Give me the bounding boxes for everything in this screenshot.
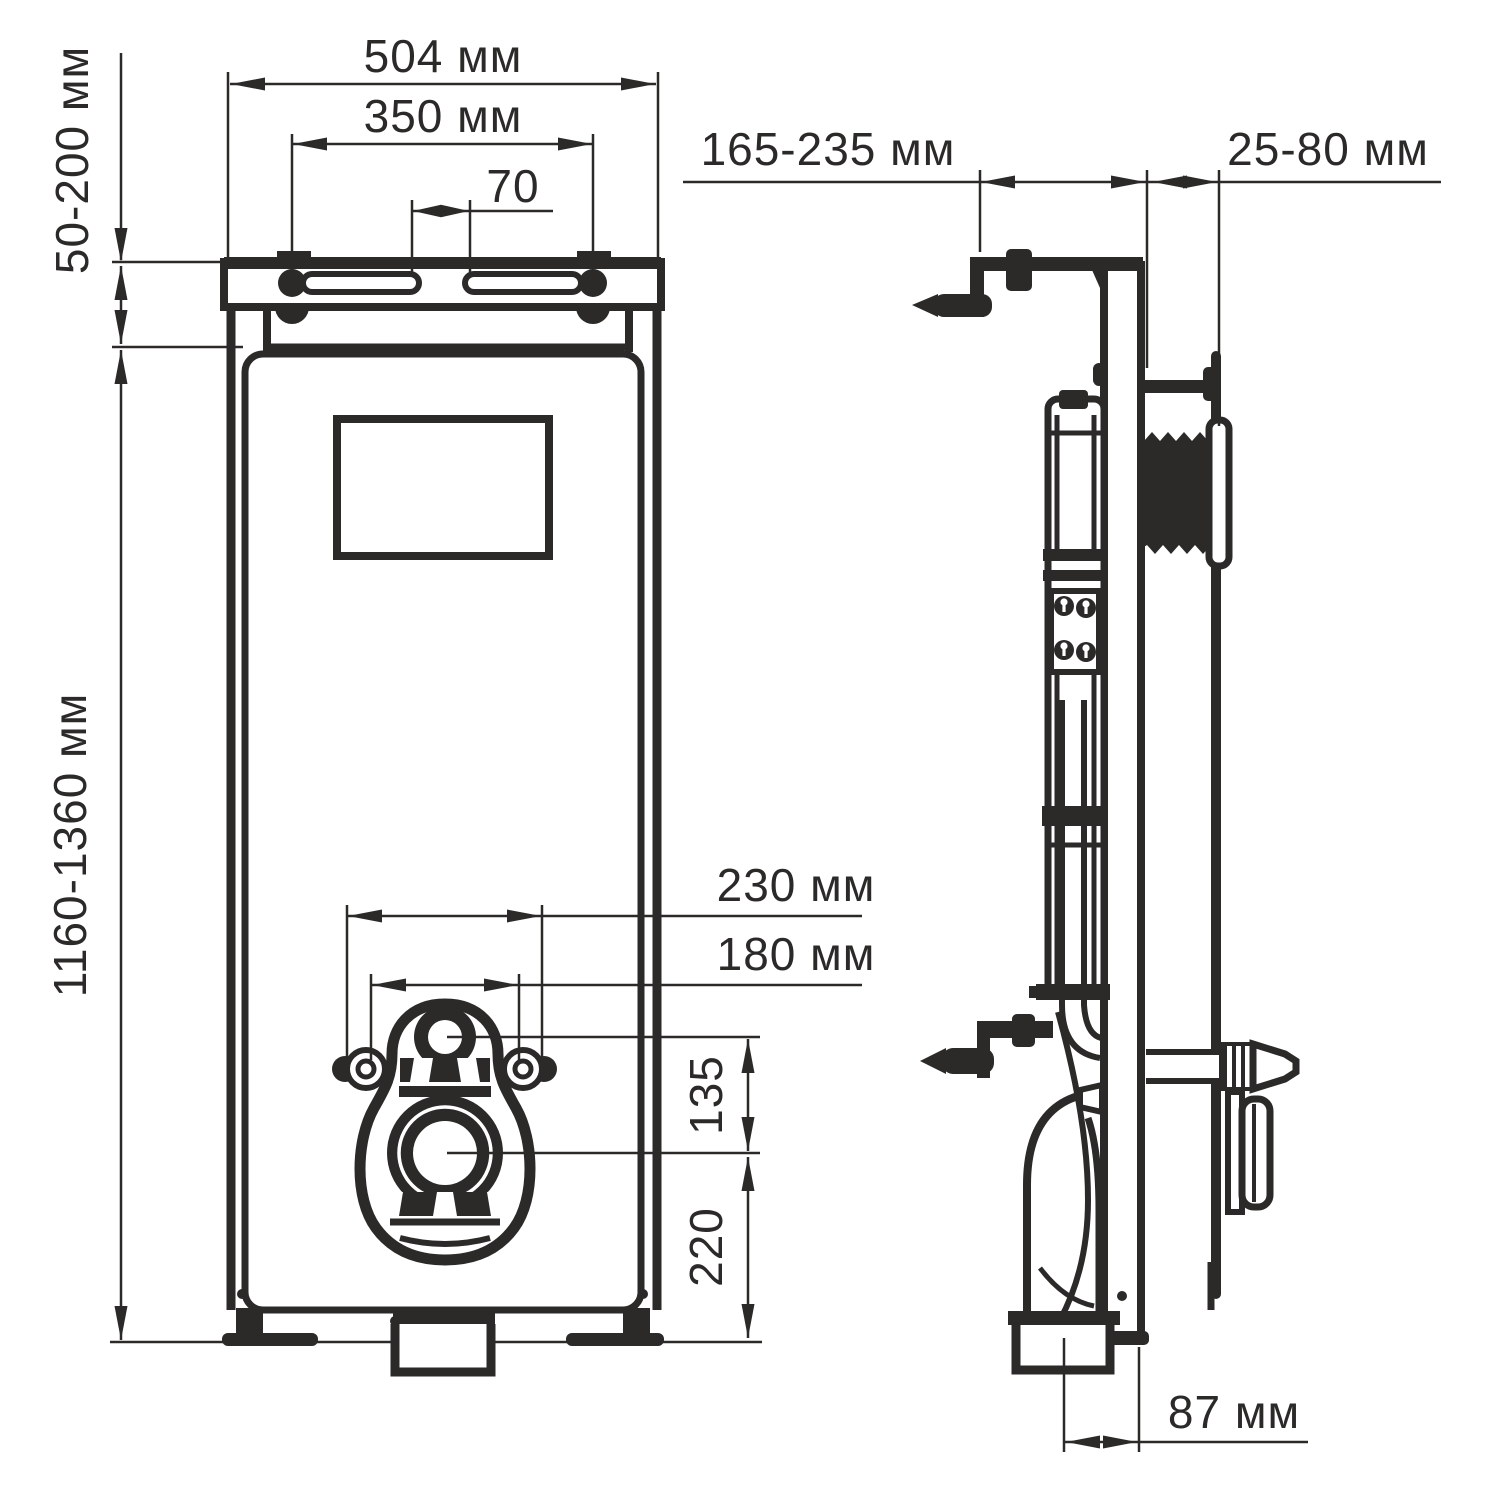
drain-trap [1027, 1012, 1102, 1330]
adjust-slot-left [303, 274, 419, 292]
cistern [1029, 390, 1110, 1000]
wc-stud-hole-left-inner [358, 1061, 374, 1077]
dim-label-504: 504 мм [364, 30, 523, 82]
dim-label-25-80: 25-80 мм [1227, 123, 1429, 175]
lower-wall-bracket [920, 1014, 1053, 1078]
cistern-base-flange [1036, 984, 1110, 1000]
foot-plate-right [566, 1333, 664, 1346]
cistern-band-2 [1043, 570, 1105, 581]
upper-anchor-tip [912, 294, 938, 317]
corrugated-supply [1144, 432, 1211, 554]
shoulder-cutout-left [410, 1058, 433, 1082]
depth-bracket-nub [1203, 367, 1219, 401]
clamp-left [399, 1192, 437, 1216]
foot-leg-left [236, 1308, 263, 1336]
drain-collar-side [1008, 1311, 1120, 1325]
dim-label-180: 180 мм [717, 928, 876, 980]
lower-anchor-tip [920, 1048, 946, 1074]
dim-depth: 165-235 мм 25-80 мм [683, 123, 1441, 426]
dim-label-70: 70 [486, 160, 539, 212]
upper-anchor-body [934, 294, 992, 317]
frame-bolt-side [1117, 1291, 1127, 1301]
dim-bolts-350: 350 мм [292, 90, 593, 274]
adjust-slot-right [465, 274, 581, 292]
wc-stud-hole-right-inner [515, 1061, 531, 1077]
drain-bolt-front [390, 1316, 400, 1326]
dim-label-50-200: 50-200 мм [46, 46, 98, 274]
dim-top-adjust: 50-200 мм [46, 46, 243, 347]
dim-height: 1160-1360 мм [44, 350, 128, 1340]
side-view [912, 249, 1296, 1370]
flush-access-box [1209, 420, 1229, 566]
top-tab-left [277, 251, 311, 264]
front-view [110, 251, 762, 1372]
dim-label-87: 87 мм [1168, 1386, 1300, 1438]
foot-bolt-left [237, 1289, 247, 1299]
wc-flange [1228, 1092, 1270, 1212]
foot-plate-left [222, 1333, 318, 1346]
frame-stud-upper [1093, 363, 1105, 386]
upper-bracket-arm [970, 257, 1143, 271]
cistern-base-tab [1029, 986, 1038, 998]
cistern-band-1 [1043, 549, 1105, 561]
drain-collar-front [393, 1312, 495, 1324]
dim-label-350: 350 мм [364, 90, 523, 142]
cistern-cap [1059, 390, 1088, 409]
upper-wall-bracket [912, 249, 1143, 317]
technical-drawing-page: 504 мм 350 мм 70 50-200 мм [0, 0, 1500, 1500]
lower-anchor-body [942, 1048, 994, 1074]
lower-bracket-screw [1012, 1014, 1035, 1047]
cistern-clamp-band [1042, 806, 1106, 826]
washer-right [576, 307, 610, 324]
clamp-right [453, 1192, 491, 1216]
trap-soil-entry [1080, 1085, 1102, 1112]
upper-bracket-screw [1006, 249, 1032, 291]
soil-pipe [1146, 1042, 1296, 1091]
foot-bolt-right [638, 1289, 648, 1299]
drain-outlet-front [395, 1324, 491, 1372]
installation-frame-drawing: 504 мм 350 мм 70 50-200 мм [0, 0, 1500, 1500]
access-window [337, 419, 549, 556]
dim-label-220: 220 [680, 1207, 732, 1287]
soil-pipe-cone [1253, 1044, 1296, 1089]
dim-label-135: 135 [680, 1055, 732, 1135]
dim-label-230: 230 мм [717, 859, 876, 911]
foot-leg-right [623, 1308, 650, 1336]
dim-label-165-235: 165-235 мм [701, 123, 956, 175]
shoulder-cutout-right [457, 1058, 480, 1082]
dim-label-1160-1360: 1160-1360 мм [44, 693, 96, 998]
washer-left [275, 307, 309, 324]
